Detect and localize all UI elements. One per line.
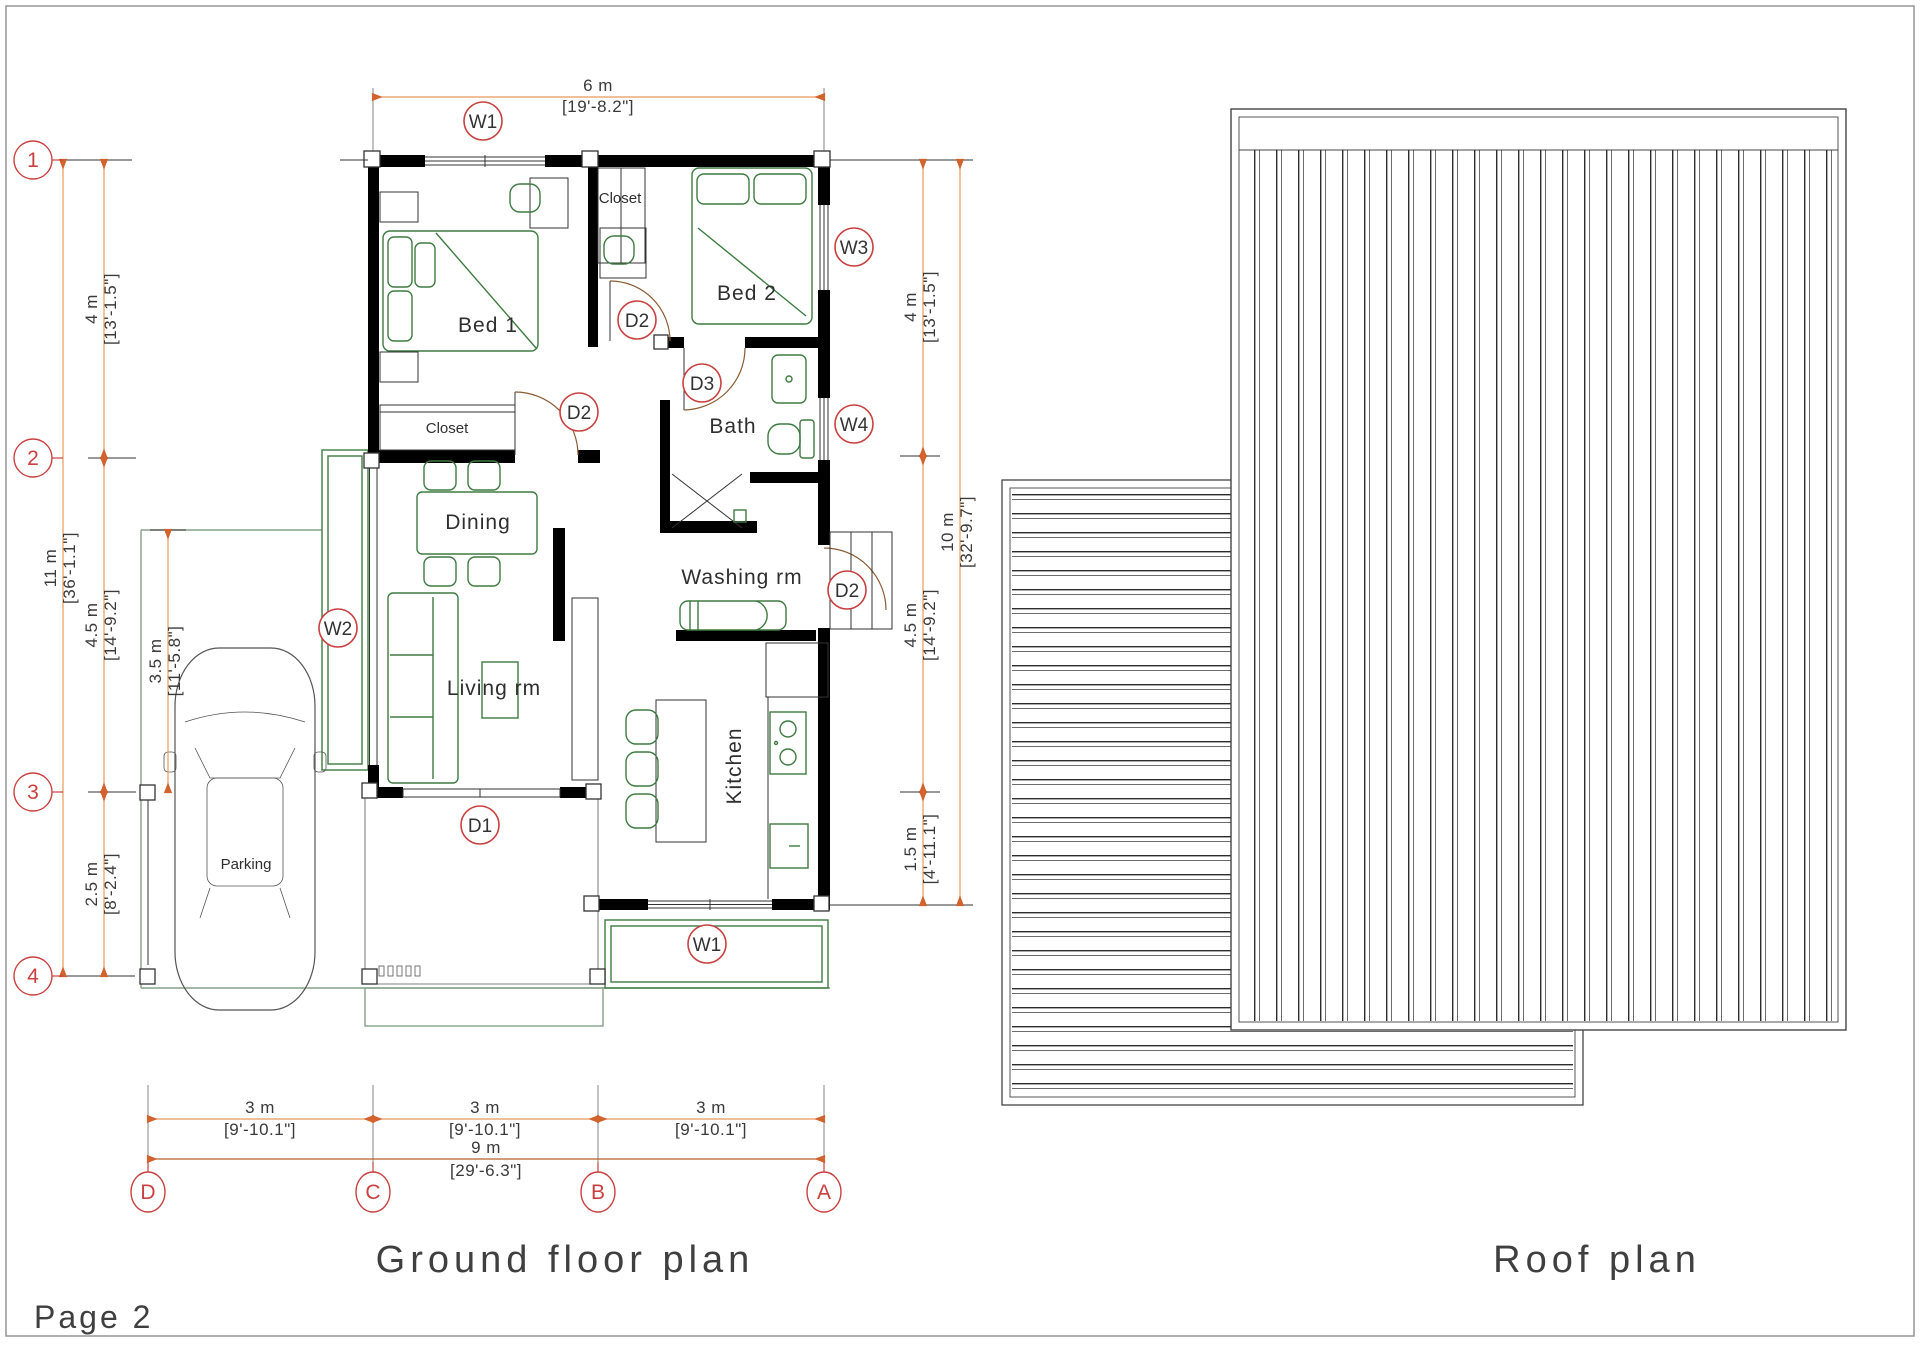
dim-left-3p5m: 3.5 m bbox=[146, 638, 165, 683]
label-bath: Bath bbox=[709, 415, 756, 438]
tag-w1-bottom: W1 bbox=[693, 935, 722, 956]
dim-left-2p5m: 2.5 m bbox=[82, 861, 101, 906]
car bbox=[164, 648, 326, 1010]
tag-d1: D1 bbox=[468, 816, 492, 837]
tag-d3: D3 bbox=[690, 374, 714, 395]
closet-top-furniture bbox=[598, 168, 646, 278]
label-closet-bed1: Closet bbox=[426, 420, 469, 437]
terrace-step-outline bbox=[365, 988, 603, 1026]
svg-text:[9'-10.1"]: [9'-10.1"] bbox=[224, 1120, 296, 1139]
tag-d2-entry: D2 bbox=[835, 581, 859, 602]
svg-text:[9'-10.1"]: [9'-10.1"] bbox=[449, 1120, 521, 1139]
tag-w1-top: W1 bbox=[469, 112, 498, 133]
tag-d2-bed2: D2 bbox=[625, 311, 649, 332]
svg-text:[13'-1.5"]: [13'-1.5"] bbox=[101, 273, 120, 345]
page-number: Page 2 bbox=[34, 1299, 153, 1335]
steps-hatch bbox=[379, 966, 384, 976]
window-w3 bbox=[820, 205, 828, 290]
svg-text:[14'-9.2"]: [14'-9.2"] bbox=[920, 589, 939, 661]
tag-w2: W2 bbox=[324, 619, 353, 640]
dim-left-4m: 4 m bbox=[82, 294, 101, 324]
grid-col-c: C bbox=[365, 1181, 380, 1204]
dim-right-4p5m: 4.5 m bbox=[901, 602, 920, 647]
svg-text:[8'-2.4"]: [8'-2.4"] bbox=[101, 853, 120, 915]
dim-right-10m: 10 m bbox=[938, 512, 957, 552]
grid-row-2: 2 bbox=[27, 447, 39, 470]
grid-row-4: 4 bbox=[27, 965, 39, 988]
dim-bottom-9m: 9 m bbox=[471, 1138, 501, 1157]
main-roof-hatch bbox=[1240, 150, 1837, 1021]
roof-plan bbox=[1002, 109, 1846, 1105]
drawing-sheet: 6 m [19'-8.2"] 4 m [13'-1.5"] 11 m [36'-… bbox=[0, 0, 1920, 1342]
floor-plan-canvas: 6 m [19'-8.2"] 4 m [13'-1.5"] 11 m [36'-… bbox=[0, 0, 1920, 1342]
label-dining: Dining bbox=[445, 511, 511, 534]
bed1-furniture bbox=[380, 178, 568, 382]
tag-w3: W3 bbox=[840, 238, 869, 259]
svg-text:[32'-9.7"]: [32'-9.7"] bbox=[957, 496, 976, 568]
label-washing: Washing rm bbox=[681, 566, 802, 589]
svg-text:[29'-6.3"]: [29'-6.3"] bbox=[450, 1161, 522, 1180]
dim-bottom-3m-2: 3 m bbox=[470, 1098, 500, 1117]
main-roof bbox=[1231, 109, 1846, 1030]
label-closet-top: Closet bbox=[599, 190, 642, 207]
dim-top-ft: [19'-8.2"] bbox=[562, 97, 634, 116]
grid-row-3: 3 bbox=[27, 781, 39, 804]
grid-col-b: B bbox=[591, 1181, 605, 1204]
window-w1-top bbox=[425, 155, 545, 167]
dim-left-4p5m: 4.5 m bbox=[82, 602, 101, 647]
dim-right-4m: 4 m bbox=[901, 292, 920, 322]
window-w1-bottom bbox=[648, 899, 772, 910]
window-w2 bbox=[370, 468, 378, 765]
svg-text:[4'-11.1"]: [4'-11.1"] bbox=[920, 814, 939, 885]
washing-machine bbox=[680, 601, 786, 630]
svg-text:[36'-1.1"]: [36'-1.1"] bbox=[60, 532, 79, 604]
tag-w4: W4 bbox=[840, 415, 869, 436]
label-bed2: Bed 2 bbox=[717, 282, 777, 305]
tag-d2-bed1: D2 bbox=[567, 403, 591, 424]
label-bed1: Bed 1 bbox=[458, 314, 518, 337]
window-w4 bbox=[820, 398, 828, 460]
svg-text:[11'-5.8"]: [11'-5.8"] bbox=[165, 626, 184, 697]
dim-right-1p5m: 1.5 m bbox=[901, 826, 920, 871]
dim-bottom-3m-3: 3 m bbox=[696, 1098, 726, 1117]
dim-bottom-3m-1: 3 m bbox=[245, 1098, 275, 1117]
label-living: Living rm bbox=[447, 677, 541, 700]
grid-col-d: D bbox=[140, 1181, 155, 1204]
title-ground-floor-plan: Ground floor plan bbox=[376, 1239, 755, 1281]
dim-left-11m: 11 m bbox=[41, 549, 60, 588]
dim-top-m: 6 m bbox=[583, 76, 613, 95]
label-kitchen: Kitchen bbox=[723, 727, 746, 804]
grid-col-a: A bbox=[817, 1181, 831, 1204]
svg-text:[13'-1.5"]: [13'-1.5"] bbox=[920, 271, 939, 343]
grid-row-1: 1 bbox=[27, 149, 39, 172]
svg-text:[9'-10.1"]: [9'-10.1"] bbox=[675, 1120, 747, 1139]
label-parking: Parking bbox=[221, 856, 272, 873]
title-roof-plan: Roof plan bbox=[1493, 1239, 1701, 1281]
svg-text:[14'-9.2"]: [14'-9.2"] bbox=[101, 589, 120, 661]
